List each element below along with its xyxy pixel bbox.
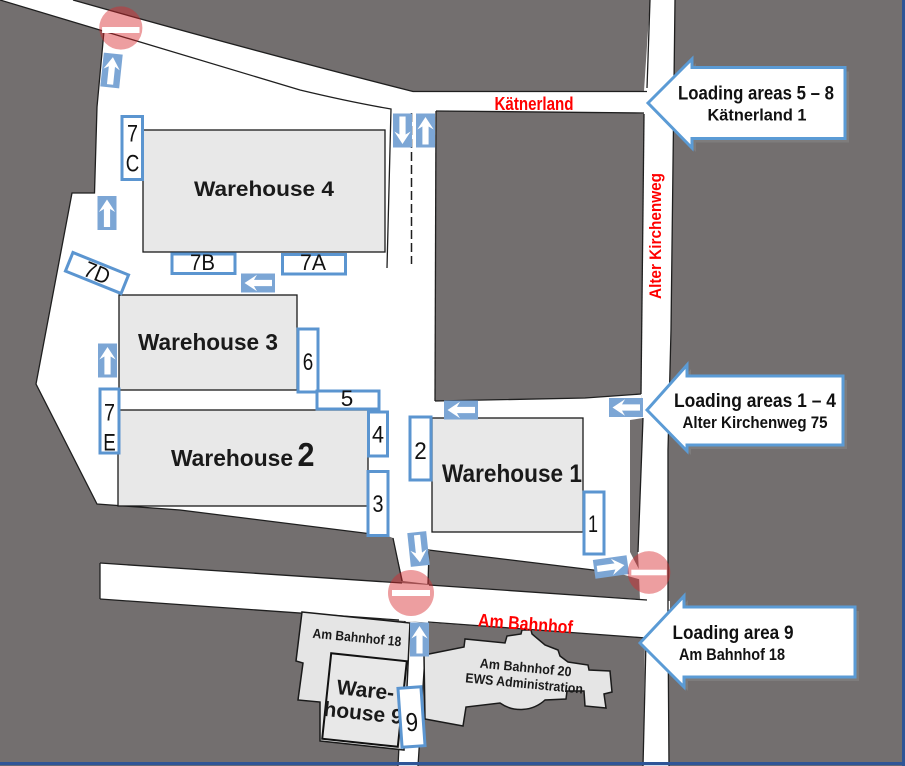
svg-text:Loading area 9: Loading area 9 [673, 622, 794, 644]
svg-text:Warehouse 4: Warehouse 4 [194, 177, 334, 201]
svg-text:Alter Kirchenweg 75: Alter Kirchenweg 75 [683, 413, 828, 432]
svg-text:6: 6 [303, 349, 314, 376]
svg-text:7B: 7B [190, 250, 215, 275]
svg-text:Loading areas 1 – 4: Loading areas 1 – 4 [674, 390, 836, 412]
svg-text:7A: 7A [300, 250, 326, 275]
svg-text:E: E [103, 430, 116, 457]
svg-text:7: 7 [127, 121, 138, 148]
svg-text:Warehouse: Warehouse [171, 445, 293, 471]
svg-text:Kätnerland 1: Kätnerland 1 [708, 106, 807, 125]
svg-text:9: 9 [405, 707, 420, 738]
svg-text:Kätnerland: Kätnerland [495, 94, 574, 114]
svg-text:Am Bahnhof 18: Am Bahnhof 18 [679, 645, 785, 664]
svg-text:Warehouse 3: Warehouse 3 [138, 329, 278, 355]
svg-text:Alter Kirchenweg: Alter Kirchenweg [646, 173, 665, 299]
svg-text:3: 3 [373, 491, 384, 518]
svg-text:5: 5 [341, 386, 354, 411]
svg-text:1: 1 [588, 511, 598, 538]
svg-text:7: 7 [104, 400, 115, 427]
svg-text:Loading areas 5 – 8: Loading areas 5 – 8 [678, 83, 834, 105]
svg-text:C: C [126, 151, 140, 178]
svg-text:2: 2 [298, 436, 315, 473]
svg-text:2: 2 [414, 438, 427, 465]
svg-text:Warehouse 1: Warehouse 1 [442, 460, 582, 488]
svg-text:4: 4 [372, 422, 384, 449]
